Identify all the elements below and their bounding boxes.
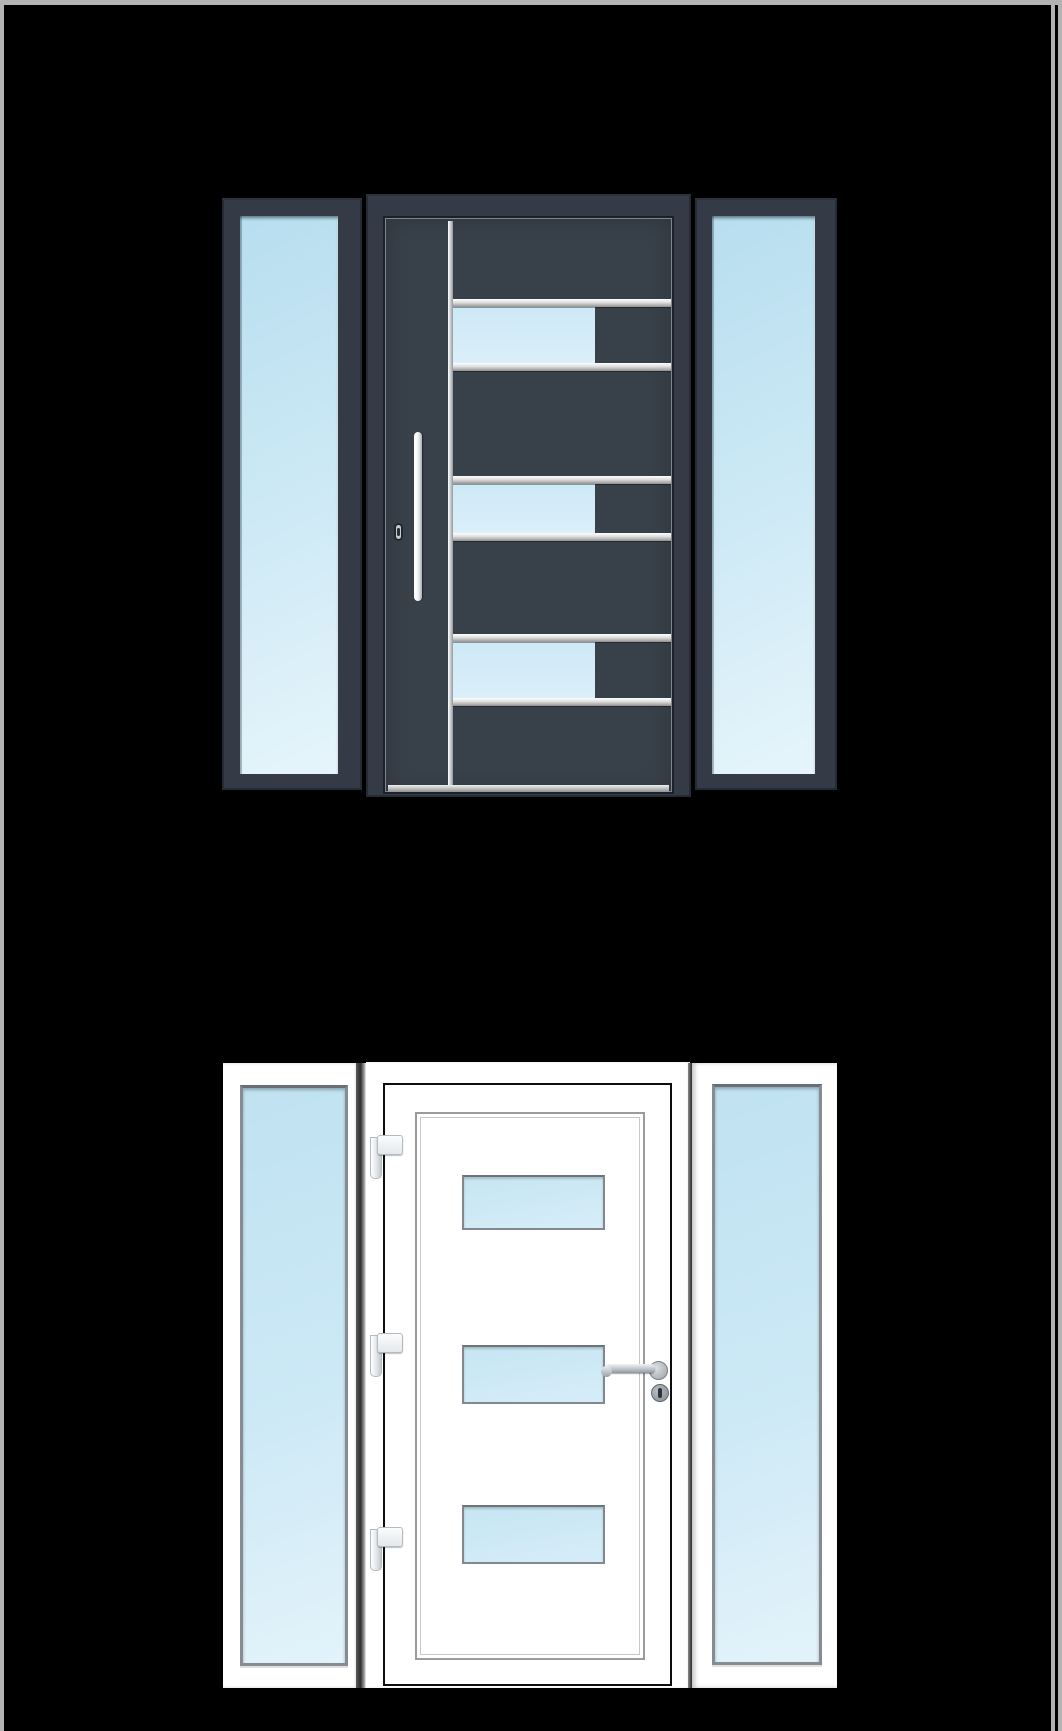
glazing-bar [453,299,671,307]
leaf-glass-panel [453,484,595,533]
hinge-flap [377,1333,403,1353]
leaf-glass-panel [462,1345,605,1404]
lever-handle [605,1364,655,1373]
white-sidelight-right-glass [712,1084,822,1665]
white-sidelight-right [692,1063,837,1688]
canvas-border-right [1058,0,1062,1731]
glazing-bar [453,698,671,706]
leaf-glass-panel [462,1175,605,1230]
leaf-glass-panel [462,1505,605,1564]
hinge [370,1527,403,1571]
keyhole-icon [397,528,400,536]
mullion-shadow-left [356,1063,366,1688]
dark-door-leaf [385,218,672,792]
hinge-flap [377,1135,403,1155]
glazing-bar [453,533,671,541]
glazing-bar [453,363,671,371]
glazing-bar [453,634,671,642]
leaf-glass-panel [453,307,595,363]
door-preview-white[interactable] [223,1062,837,1688]
white-sidelight-left [223,1063,358,1688]
hinge [370,1135,403,1179]
white-door-leaf [383,1083,672,1686]
white-sidelight-left-glass [240,1085,348,1666]
canvas-border-left [0,0,4,1731]
lock-cylinder-rosette [651,1384,669,1402]
dark-door-frame [366,194,691,797]
door-threshold [388,785,669,792]
dark-sidelight-right [695,198,837,790]
canvas-border-top [0,0,1062,5]
glazing-bar [453,476,671,484]
viewer-canvas [0,0,1062,1731]
lever-handle-tip [601,1366,612,1377]
leaf-glass-panel [453,642,595,698]
white-door-frame [366,1062,690,1688]
keyhole-icon [658,1388,662,1398]
lock-cylinder [394,523,403,541]
hinge-flap [377,1527,403,1547]
hinge [370,1333,403,1377]
scrollbar-thumb[interactable] [1051,0,1055,1731]
pull-handle [414,432,422,601]
door-preview-anthracite[interactable] [222,194,837,797]
dark-sidelight-left [222,198,362,790]
dark-sidelight-left-glass [240,216,338,774]
dark-sidelight-right-glass [712,216,815,774]
